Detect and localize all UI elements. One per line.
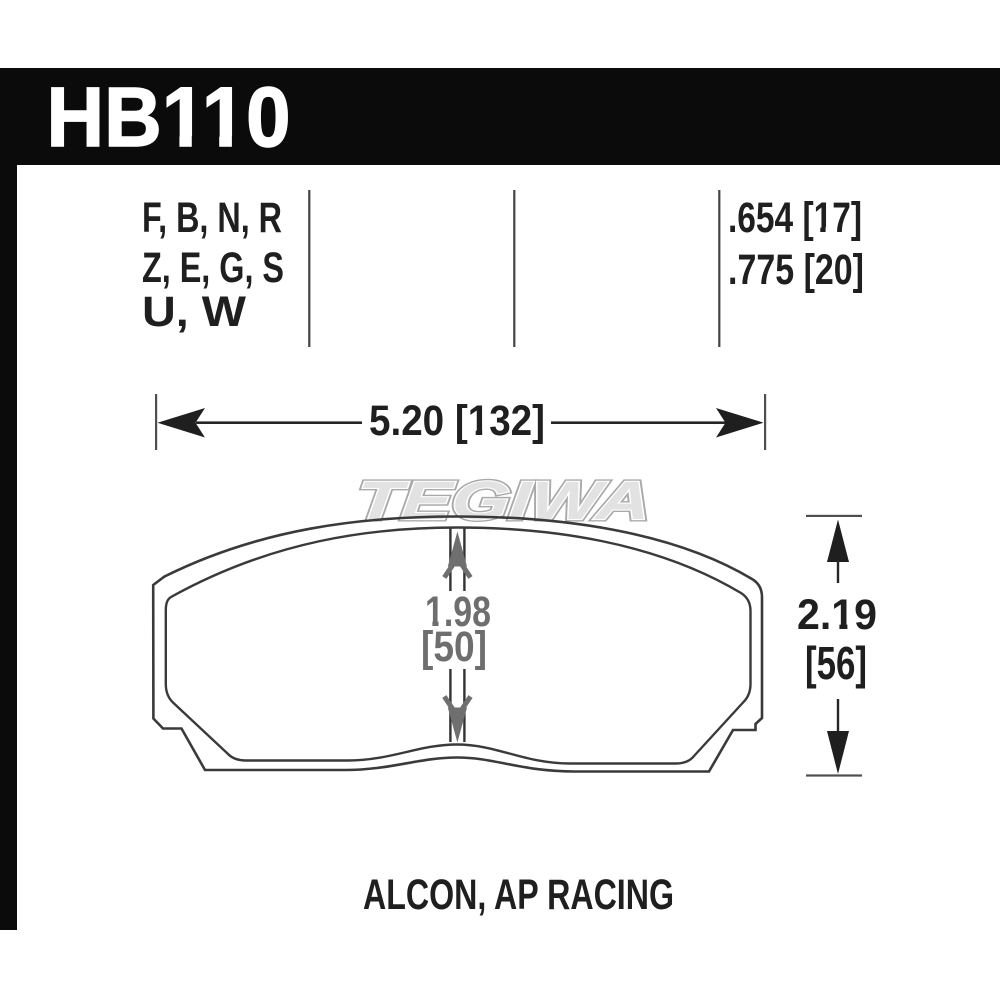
svg-text:[56]: [56]: [805, 637, 867, 689]
svg-text:ALCON, AP RACING: ALCON, AP RACING: [363, 871, 674, 919]
svg-text:[50]: [50]: [421, 623, 487, 671]
svg-text:U, W: U, W: [142, 288, 246, 336]
svg-text:Z, E, G, S: Z, E, G, S: [142, 244, 284, 292]
svg-text:HB110: HB110: [47, 71, 291, 164]
svg-text:.654 [17]: .654 [17]: [728, 194, 862, 242]
svg-text:F, B, N, R: F, B, N, R: [142, 194, 282, 242]
svg-text:TEGIWA: TEGIWA: [354, 471, 653, 531]
svg-text:5.20 [132]: 5.20 [132]: [369, 397, 545, 445]
svg-text:.775 [20]: .775 [20]: [728, 246, 864, 294]
svg-text:2.19: 2.19: [797, 591, 877, 639]
